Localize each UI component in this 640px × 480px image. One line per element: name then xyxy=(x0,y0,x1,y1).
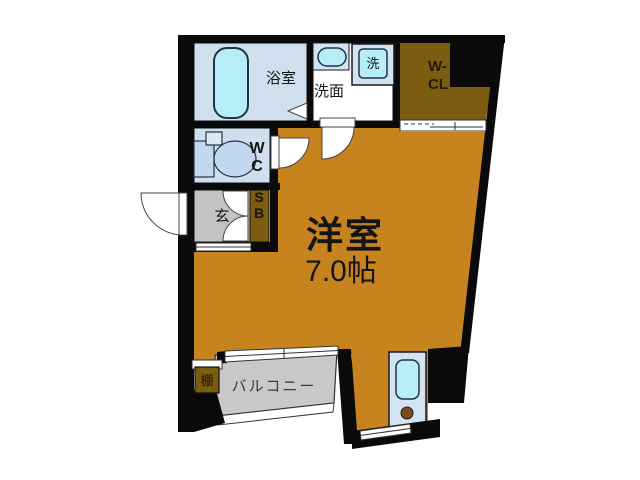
wall-under-wc xyxy=(178,183,280,190)
closet-sliding-door xyxy=(400,120,486,131)
washroom-label: 洗面 xyxy=(314,83,344,100)
sink-icon xyxy=(313,43,349,70)
entrance-label: 玄 xyxy=(214,208,229,225)
bathroom-label: 浴室 xyxy=(266,70,296,87)
closet-label-line2: CL xyxy=(428,76,448,93)
wall-bath-washroom xyxy=(307,43,313,121)
bathtub-icon xyxy=(214,48,248,118)
shoebox-label-line2: B xyxy=(254,205,264,221)
floor-plan-drawing: 浴室 洗面 洗 W- CL W C 玄 S B 洋室 7.0帖 棚 バルコニー xyxy=(0,0,640,480)
main-room-size-label: 7.0帖 xyxy=(305,255,377,288)
shelf-label: 棚 xyxy=(200,373,213,388)
wc-label-line2: C xyxy=(251,158,263,175)
stove-burner-icon xyxy=(401,407,413,419)
kitchen-sink-icon xyxy=(396,360,419,399)
wall-kitchen-right-chunk xyxy=(428,346,469,403)
entrance-step xyxy=(196,243,251,251)
wc-label-line1: W xyxy=(249,140,265,157)
washer-label: 洗 xyxy=(366,56,379,71)
closet-label-line1: W- xyxy=(428,58,447,75)
main-room-label: 洋室 xyxy=(306,214,384,256)
entrance-door xyxy=(141,193,187,235)
shoebox-label-line1: S xyxy=(254,189,263,205)
wall-under-bath xyxy=(178,121,400,128)
floor-plan-page: 浴室 洗面 洗 W- CL W C 玄 S B 洋室 7.0帖 棚 バルコニー xyxy=(0,0,640,480)
balcony-label: バルコニー xyxy=(232,378,317,395)
